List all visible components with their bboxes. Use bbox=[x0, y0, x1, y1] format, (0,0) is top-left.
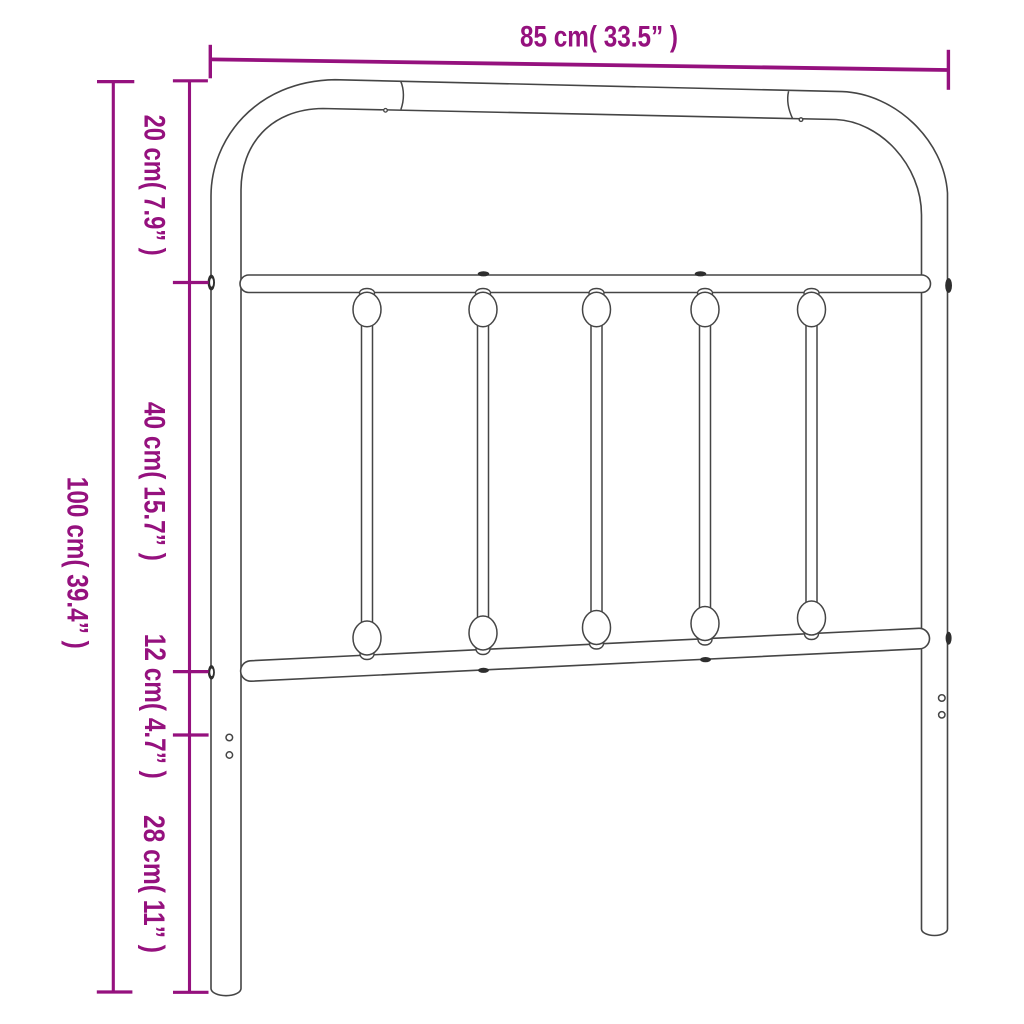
svg-text:40 cm( 15.7” ): 40 cm( 15.7” ) bbox=[138, 402, 171, 561]
svg-text:85 cm( 33.5” ): 85 cm( 33.5” ) bbox=[520, 21, 678, 54]
svg-text:20 cm( 7.9” ): 20 cm( 7.9” ) bbox=[138, 115, 171, 256]
svg-text:100 cm( 39.4” ): 100 cm( 39.4” ) bbox=[60, 477, 93, 649]
svg-text:28 cm( 11” ): 28 cm( 11” ) bbox=[137, 815, 170, 953]
svg-text:12 cm( 4.7” ): 12 cm( 4.7” ) bbox=[138, 634, 171, 779]
